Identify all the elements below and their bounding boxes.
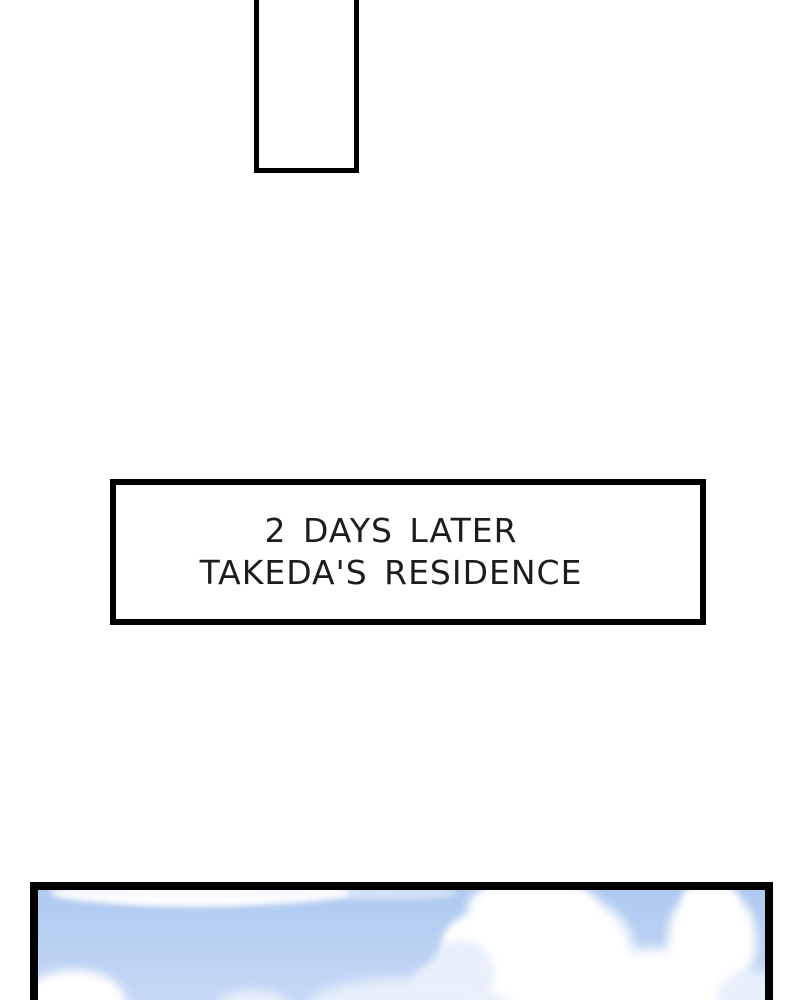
cloud-lump bbox=[218, 990, 288, 1000]
cloud-lump bbox=[682, 882, 738, 918]
top-partial-panel bbox=[254, 0, 359, 173]
cloud-wisp bbox=[108, 892, 268, 906]
comic-page: 2 DAYS LATER TAKEDA'S RESIDENCE bbox=[0, 0, 800, 1000]
cloud-corner-left bbox=[30, 970, 126, 1000]
caption-box: 2 DAYS LATER TAKEDA'S RESIDENCE bbox=[110, 479, 706, 625]
cloud-wisp bbox=[308, 886, 458, 900]
sky-panel bbox=[30, 882, 773, 1000]
caption-line-2: TAKEDA'S RESIDENCE bbox=[200, 552, 583, 594]
caption-line-1: 2 DAYS LATER bbox=[264, 510, 517, 552]
